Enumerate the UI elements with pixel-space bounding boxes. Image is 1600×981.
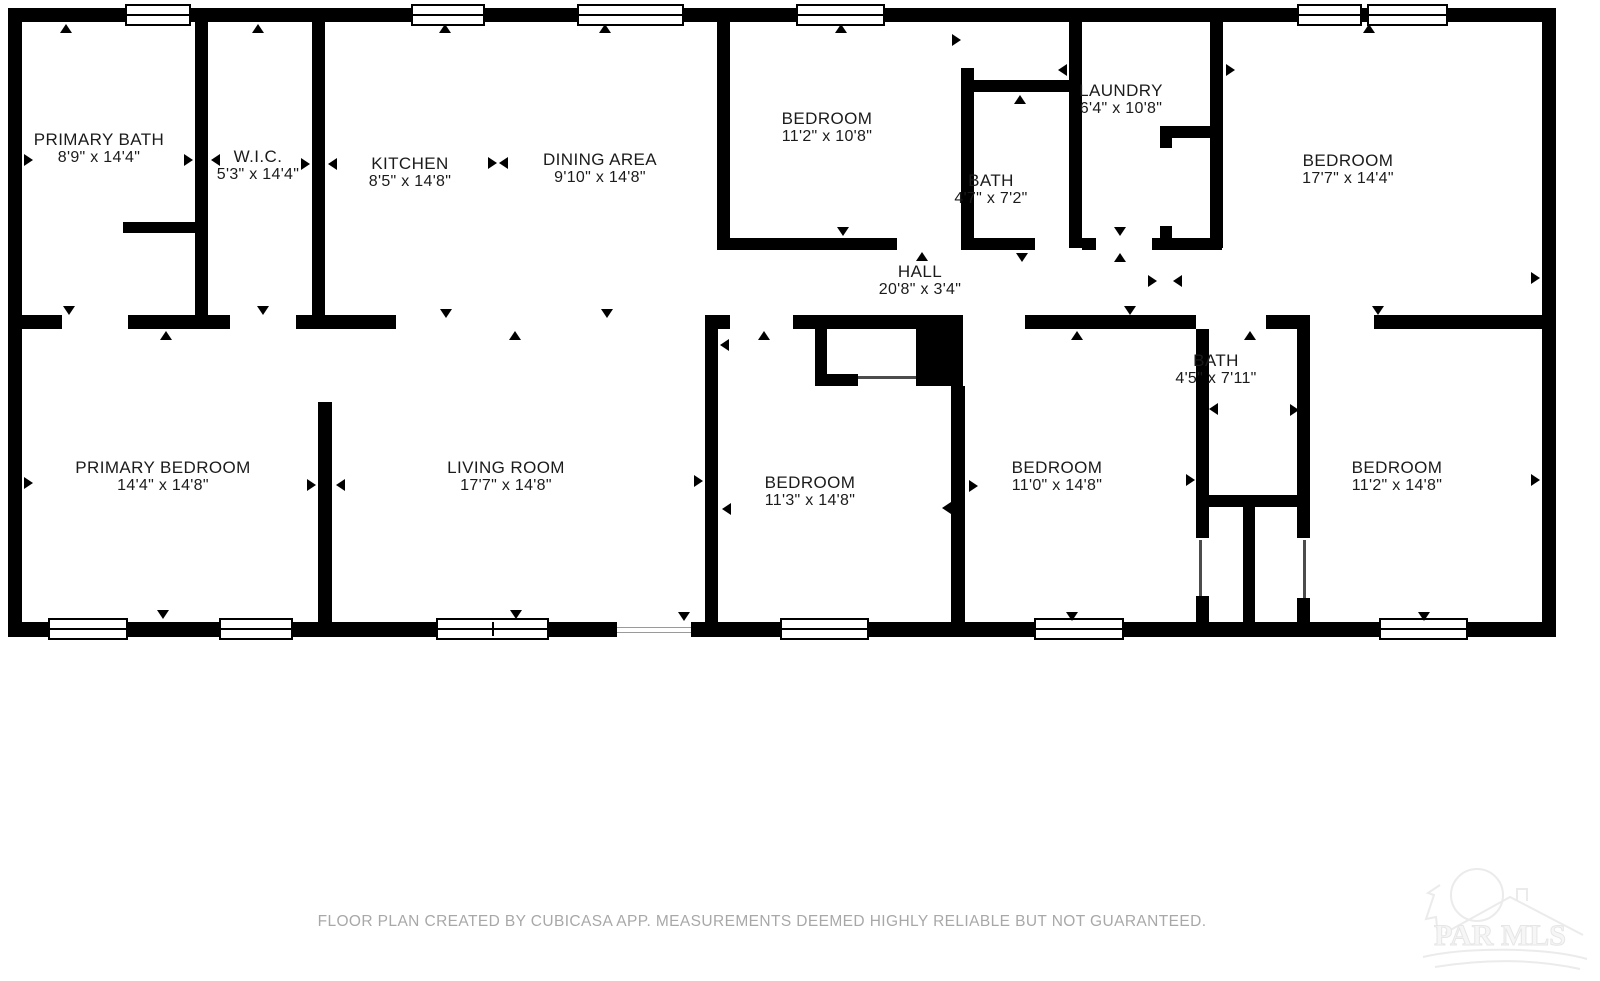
- door-arrow-icon: [1014, 95, 1026, 104]
- wall-segment: [705, 329, 718, 622]
- door-arrow-icon: [1173, 275, 1182, 287]
- wall-segment: [1069, 22, 1082, 248]
- room-label-living-room-10: LIVING ROOM17'7" x 14'8": [447, 459, 565, 495]
- window-pane-line: [221, 628, 291, 630]
- wall-segment: [717, 238, 897, 250]
- door-arrow-icon: [969, 480, 978, 492]
- wall-segment: [1196, 495, 1310, 507]
- room-dimensions: 17'7" x 14'8": [447, 477, 565, 495]
- window-pane-line: [413, 14, 483, 16]
- room-label-bedroom-4: BEDROOM11'2" x 10'8": [782, 110, 873, 146]
- wall-segment: [318, 402, 332, 622]
- door-arrow-icon: [1124, 306, 1136, 315]
- window: [125, 4, 191, 26]
- room-dimensions: 11'2" x 10'8": [782, 128, 873, 146]
- door-arrow-icon: [509, 331, 521, 340]
- room-name: BEDROOM: [1302, 152, 1394, 170]
- footer-disclaimer: FLOOR PLAN CREATED BY CUBICASA APP. MEAS…: [318, 913, 1207, 931]
- door-arrow-icon: [510, 610, 522, 619]
- door-arrow-icon: [758, 331, 770, 340]
- door-arrow-icon: [1531, 474, 1540, 486]
- door-arrow-icon: [706, 379, 715, 391]
- room-name: BEDROOM: [782, 110, 873, 128]
- door-arrow-icon: [252, 24, 264, 33]
- room-name: BEDROOM: [765, 474, 856, 492]
- door-arrow-icon: [678, 612, 690, 621]
- room-name: KITCHEN: [369, 155, 451, 173]
- room-dimensions: 8'9" x 14'4": [34, 149, 164, 167]
- window-pane-line: [782, 628, 867, 630]
- door-arrow-icon: [257, 306, 269, 315]
- room-name: DINING AREA: [543, 151, 657, 169]
- door-arrow-icon: [336, 479, 345, 491]
- room-dimensions: 4'7" x 7'2": [954, 190, 1027, 208]
- slider-track-line: [617, 627, 691, 628]
- logo-sun-icon: [1451, 869, 1503, 921]
- room-name: LIVING ROOM: [447, 459, 565, 477]
- room-name: BATH: [954, 172, 1027, 190]
- room-dimensions: 11'0" x 14'8": [1012, 477, 1103, 495]
- room-label-bedroom-12: BEDROOM11'0" x 14'8": [1012, 459, 1103, 495]
- room-label-w-i-c--1: W.I.C.5'3" x 14'4": [217, 148, 299, 184]
- wall-segment: [961, 238, 1035, 250]
- window: [436, 618, 549, 640]
- wall-segment: [123, 222, 195, 233]
- door-arrow-icon: [1372, 306, 1384, 315]
- wall-segment: [705, 315, 730, 329]
- door-arrow-icon: [952, 34, 961, 46]
- room-label-hall-8: HALL20'8" x 3'4": [879, 263, 961, 299]
- door-arrow-icon: [1290, 404, 1299, 416]
- window-pane-line: [798, 14, 883, 16]
- door-arrow-icon: [835, 24, 847, 33]
- room-name: HALL: [879, 263, 961, 281]
- door-arrow-icon: [1226, 64, 1235, 76]
- closet-door-line: [1303, 540, 1306, 598]
- room-label-bedroom-7: BEDROOM17'7" x 14'4": [1302, 152, 1394, 188]
- room-name: BATH: [1175, 352, 1256, 370]
- door-arrow-icon: [599, 24, 611, 33]
- door-arrow-icon: [837, 227, 849, 236]
- wall-segment: [1243, 507, 1255, 622]
- room-label-bedroom-11: BEDROOM11'3" x 14'8": [765, 474, 856, 510]
- window: [1367, 4, 1448, 26]
- door-arrow-icon: [184, 154, 193, 166]
- room-dimensions: 4'5" x 7'11": [1175, 370, 1256, 388]
- closet-door-line: [1199, 540, 1202, 596]
- wall-segment: [1160, 226, 1172, 250]
- door-arrow-icon: [440, 309, 452, 318]
- wall-segment: [296, 315, 396, 329]
- door-arrow-icon: [694, 475, 703, 487]
- door-arrow-icon: [1071, 331, 1083, 340]
- window: [1297, 4, 1362, 26]
- door-arrow-icon: [499, 157, 508, 169]
- room-label-bath-13: BATH4'5" x 7'11": [1175, 352, 1256, 388]
- room-dimensions: 20'8" x 3'4": [879, 281, 961, 299]
- logo-chimney-icon: [1517, 889, 1527, 901]
- window-pane-line: [579, 14, 682, 16]
- door-arrow-icon: [1244, 331, 1256, 340]
- door-arrow-icon: [24, 477, 33, 489]
- room-name: BEDROOM: [1352, 459, 1443, 477]
- window: [1379, 618, 1468, 640]
- room-dimensions: 9'10" x 14'8": [543, 169, 657, 187]
- room-dimensions: 6'4" x 10'8": [1079, 100, 1163, 118]
- door-arrow-icon: [439, 24, 451, 33]
- door-arrow-icon: [1363, 24, 1375, 33]
- door-arrow-icon: [1066, 612, 1078, 621]
- door-arrow-icon: [1114, 227, 1126, 236]
- sliding-door-opening: [617, 622, 691, 637]
- wall-segment: [1160, 126, 1172, 148]
- mls-logo: PAR MLS: [1405, 855, 1595, 975]
- window: [48, 618, 128, 640]
- window: [1034, 618, 1124, 640]
- wall-segment: [128, 315, 230, 329]
- door-arrow-icon: [722, 503, 731, 515]
- door-arrow-icon: [488, 157, 497, 169]
- room-dimensions: 11'3" x 14'8": [765, 492, 856, 510]
- window: [780, 618, 869, 640]
- wall-segment: [1266, 315, 1310, 329]
- wall-segment: [815, 374, 858, 386]
- room-dimensions: 5'3" x 14'4": [217, 166, 299, 184]
- room-name: W.I.C.: [217, 148, 299, 166]
- door-arrow-icon: [1148, 275, 1157, 287]
- room-label-kitchen-2: KITCHEN8'5" x 14'8": [369, 155, 451, 191]
- logo-text: PAR MLS: [1434, 919, 1566, 952]
- room-dimensions: 14'4" x 14'8": [75, 477, 250, 495]
- door-arrow-icon: [60, 24, 72, 33]
- wall-segment: [1196, 507, 1209, 538]
- wall-segment: [195, 22, 208, 315]
- wall-segment: [1196, 596, 1209, 622]
- door-arrow-icon: [63, 306, 75, 315]
- door-arrow-icon: [1209, 403, 1218, 415]
- wall-segment: [312, 22, 325, 315]
- window-pane-line: [1036, 628, 1122, 630]
- window-pane-line: [1369, 14, 1446, 16]
- wall-segment: [1297, 598, 1310, 622]
- door-arrow-icon: [720, 339, 729, 351]
- window: [577, 4, 684, 26]
- wall-segment: [916, 315, 963, 386]
- door-arrow-icon: [301, 158, 310, 170]
- wall-segment: [793, 315, 916, 329]
- wall-segment: [951, 386, 965, 622]
- room-label-bedroom-14: BEDROOM11'2" x 14'8": [1352, 459, 1443, 495]
- room-dimensions: 11'2" x 14'8": [1352, 477, 1443, 495]
- room-name: PRIMARY BATH: [34, 131, 164, 149]
- door-arrow-icon: [916, 252, 928, 261]
- room-label-laundry-6: LAUNDRY6'4" x 10'8": [1079, 82, 1163, 118]
- room-label-primary-bedroom-9: PRIMARY BEDROOM14'4" x 14'8": [75, 459, 250, 495]
- wall-segment: [717, 22, 730, 248]
- window-pane-line: [127, 14, 189, 16]
- door-arrow-icon: [1114, 253, 1126, 262]
- floor-plan: FLOOR PLAN CREATED BY CUBICASA APP. MEAS…: [0, 0, 1600, 981]
- window: [219, 618, 293, 640]
- door-arrow-icon: [1531, 272, 1540, 284]
- wall-segment: [961, 68, 974, 248]
- room-label-bath-5: BATH4'7" x 7'2": [954, 172, 1027, 208]
- window-pane-line: [1299, 14, 1360, 16]
- door-arrow-icon: [328, 158, 337, 170]
- door-arrow-icon: [601, 309, 613, 318]
- room-dimensions: 17'7" x 14'4": [1302, 170, 1394, 188]
- wall-segment: [1025, 315, 1196, 329]
- door-arrow-icon: [157, 610, 169, 619]
- room-label-dining-area-3: DINING AREA9'10" x 14'8": [543, 151, 657, 187]
- wall-segment: [1082, 238, 1096, 250]
- door-arrow-icon: [307, 479, 316, 491]
- wall-segment: [8, 315, 62, 329]
- room-name: LAUNDRY: [1079, 82, 1163, 100]
- door-arrow-icon: [1016, 253, 1028, 262]
- wall-segment: [974, 80, 1069, 92]
- door-arrow-icon: [1418, 612, 1430, 621]
- room-name: BEDROOM: [1012, 459, 1103, 477]
- window-mullion: [492, 622, 494, 636]
- slider-track-line: [617, 632, 691, 633]
- closet-door-line: [858, 376, 916, 379]
- logo-swoosh2-icon: [1435, 961, 1580, 969]
- window-pane-line: [50, 628, 126, 630]
- door-arrow-icon: [942, 502, 951, 514]
- room-dimensions: 8'5" x 14'8": [369, 173, 451, 191]
- door-arrow-icon: [1058, 64, 1067, 76]
- room-name: PRIMARY BEDROOM: [75, 459, 250, 477]
- door-arrow-icon: [1186, 474, 1195, 486]
- wall-segment: [1374, 315, 1556, 329]
- door-arrow-icon: [160, 331, 172, 340]
- room-label-primary-bath-0: PRIMARY BATH8'9" x 14'4": [34, 131, 164, 167]
- door-arrow-icon: [24, 154, 33, 166]
- window-pane-line: [1381, 628, 1466, 630]
